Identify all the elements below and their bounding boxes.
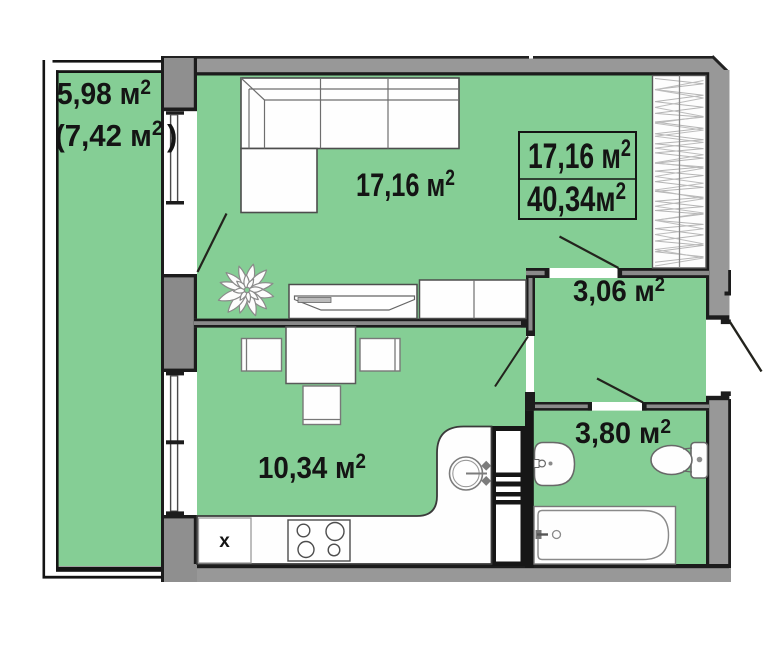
svg-text:40,34м2: 40,34м2 xyxy=(527,178,626,219)
svg-text:5,98 м2: 5,98 м2 xyxy=(57,76,151,111)
svg-text:3,06 м2: 3,06 м2 xyxy=(573,274,665,308)
svg-text:(7,42 м2: (7,42 м2 xyxy=(55,117,163,153)
svg-text:17,16 м2: 17,16 м2 xyxy=(528,135,631,176)
svg-text:17,16 м2: 17,16 м2 xyxy=(356,165,455,203)
svg-text:3,80 м2: 3,80 м2 xyxy=(575,416,671,450)
svg-text:x: x xyxy=(219,531,230,552)
svg-text:): ) xyxy=(167,118,177,153)
svg-text:10,34 м2: 10,34 м2 xyxy=(258,450,366,485)
